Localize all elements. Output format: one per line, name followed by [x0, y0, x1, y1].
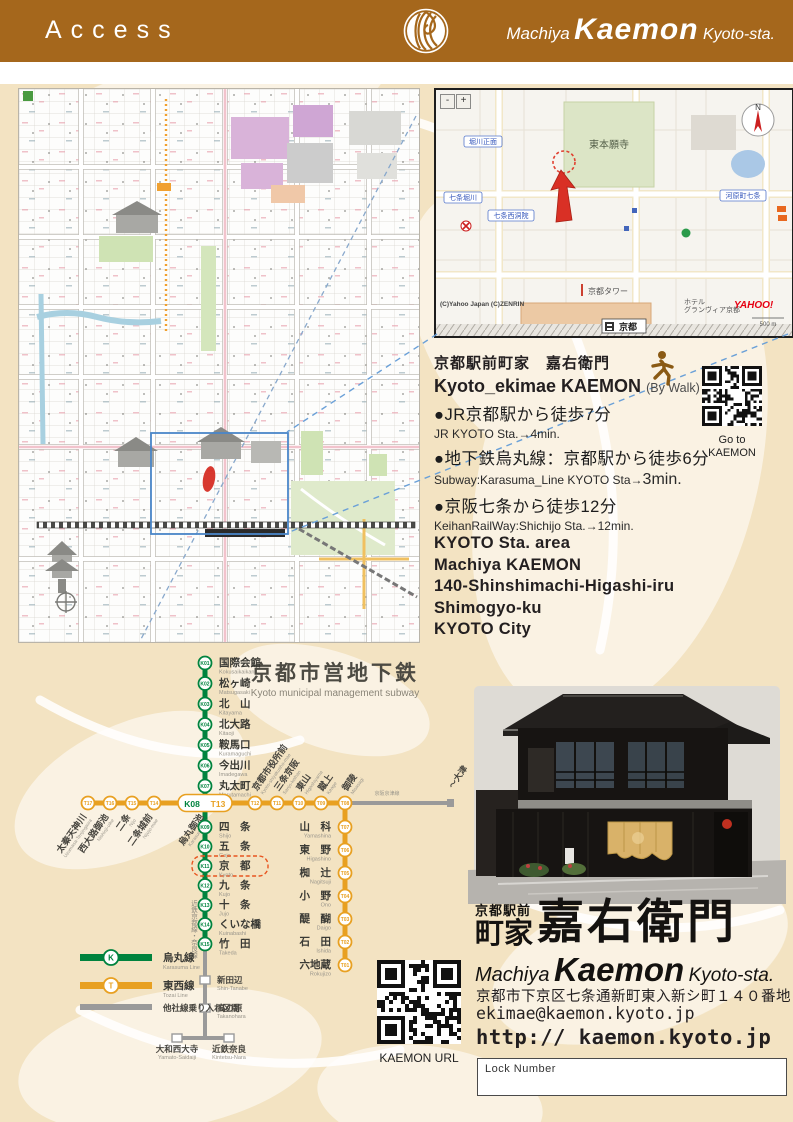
address-line: Shimogyo-ku [434, 598, 674, 620]
svg-text:T06: T06 [341, 848, 350, 854]
svg-text:K: K [108, 954, 114, 963]
svg-text:T02: T02 [341, 940, 350, 946]
svg-text:Kyoto: Kyoto [219, 873, 233, 879]
svg-text:T01: T01 [341, 963, 350, 969]
svg-text:醍 醐: 醍 醐 [300, 912, 332, 925]
compass-icon: N [742, 103, 774, 136]
route-keihan-jp: ●京阪七条から徒歩12分 [434, 493, 702, 517]
svg-text:T07: T07 [341, 825, 350, 831]
svg-text:Kintetsu-Nara: Kintetsu-Nara [212, 1055, 247, 1061]
zoom-in-button[interactable]: + [456, 94, 471, 109]
street-label: 河原町七条 [726, 191, 761, 200]
pond [731, 150, 765, 178]
lock-number-field[interactable]: Lock Number [477, 1058, 787, 1096]
map-scale: 500 m [760, 322, 777, 328]
svg-text:K09: K09 [200, 825, 209, 831]
qr1-caption-line2: KAEMON [708, 447, 756, 459]
brand-logotype: Machiya Kaemon Kyoto-sta. [506, 13, 775, 47]
logo-kaemon-jp: 嘉右衛門 [537, 898, 737, 948]
svg-text:京都: 京都 [619, 321, 637, 332]
svg-text:Yamashina: Yamashina [304, 834, 332, 840]
svg-text:T12: T12 [251, 801, 260, 807]
svg-text:小 野: 小 野 [299, 889, 332, 902]
svg-text:今出川: 今出川 [218, 759, 251, 772]
logo-romaji: Machiya Kaemon Kyoto-sta. [475, 951, 774, 989]
svg-text:Imadegawa: Imadegawa [219, 772, 248, 778]
header-bar: Access Machiya Kaemon Kyoto-sta. [0, 0, 793, 62]
svg-text:K13: K13 [200, 903, 209, 909]
svg-text:T13: T13 [211, 799, 226, 809]
svg-text:K15: K15 [200, 942, 209, 948]
walking-person-icon [645, 350, 679, 388]
header-divider [0, 62, 793, 84]
svg-text:T: T [109, 982, 114, 991]
svg-text:K07: K07 [200, 784, 209, 790]
kyoto-station-block [205, 529, 285, 537]
svg-text:近鉄京都線・奈良線: 近鉄京都線・奈良線 [190, 899, 198, 959]
svg-text:K12: K12 [200, 884, 209, 890]
address-line: Machiya KAEMON [434, 555, 674, 577]
svg-text:京 都: 京 都 [219, 859, 251, 872]
map-green-marker [23, 91, 33, 101]
svg-text:国際会館: 国際会館 [219, 656, 261, 669]
svg-text:Daigo: Daigo [317, 926, 331, 932]
qr-kaemon-url: KAEMON URL [376, 960, 462, 1065]
svg-text:石 田: 石 田 [299, 936, 332, 948]
svg-text:T16: T16 [106, 801, 115, 807]
svg-text:Karasuma Line: Karasuma Line [163, 965, 200, 971]
svg-text:竹 田: 竹 田 [218, 937, 251, 950]
svg-text:十 条: 十 条 [219, 898, 251, 911]
svg-text:Takeda: Takeda [219, 951, 238, 957]
svg-text:T10: T10 [295, 801, 304, 807]
svg-text:T03: T03 [341, 917, 350, 923]
svg-text:近鉄奈良: 近鉄奈良 [212, 1044, 247, 1054]
hotel-label-1: ホテル [684, 298, 705, 306]
svg-text:くいな橋: くいな橋 [219, 918, 261, 931]
lock-number-label: Lock Number [485, 1063, 786, 1075]
map-attribution: (C)Yahoo Japan (C)ZENRIN [440, 301, 524, 308]
svg-text:T17: T17 [84, 801, 93, 807]
logo-ekimae: 京都駅前 [475, 900, 533, 919]
svg-text:東西線: 東西線 [163, 979, 195, 992]
honganji-label: 東本願寺 [589, 138, 629, 151]
svg-text:K05: K05 [200, 743, 209, 749]
svg-text:T08: T08 [341, 801, 350, 807]
svg-text:Kuinabashi: Kuinabashi [219, 931, 246, 937]
brand-machiya: Machiya [506, 24, 569, 43]
svg-text:五 条: 五 条 [219, 840, 251, 853]
svg-text:他社線乗り入れ区間: 他社線乗り入れ区間 [162, 1003, 240, 1013]
svg-text:北 山: 北 山 [219, 697, 251, 710]
svg-text:Higashino: Higashino [307, 857, 331, 863]
yahoo-inset-map: 東本願寺 堀川正面 七条堀川 七条西洞院 河原町七条 京都タワー ホテル グラン… [434, 88, 793, 338]
qr-code [377, 960, 461, 1044]
page-title: Access [45, 16, 180, 45]
svg-text:K03: K03 [200, 702, 209, 708]
svg-text:大和西大寺: 大和西大寺 [156, 1044, 199, 1054]
svg-text:T15: T15 [128, 801, 137, 807]
route-jr-en: JR KYOTO Sta.→4min. [434, 427, 702, 441]
svg-text:九 条: 九 条 [218, 879, 251, 892]
yahoo-logo: YAHOO! [734, 300, 774, 311]
svg-text:椥 辻: 椥 辻 [300, 866, 332, 879]
svg-text:K10: K10 [200, 845, 209, 851]
svg-text:K11: K11 [201, 864, 210, 870]
svg-text:Takanohara: Takanohara [217, 1014, 247, 1020]
svg-text:北大路: 北大路 [219, 718, 251, 731]
svg-text:K01: K01 [200, 661, 209, 667]
address-line: 140-Shinshimachi-Higashi-iru [434, 576, 674, 598]
route-subway-jp: ●地下鉄烏丸線：京都駅から徒歩6分 [434, 445, 702, 469]
svg-text:T05: T05 [341, 871, 350, 877]
svg-text:Ono: Ono [321, 903, 331, 909]
street-label: 七条西洞院 [494, 211, 529, 220]
hotel-label-2: グランヴィア京都 [684, 305, 740, 314]
kyoto-station-label: 京都 [602, 319, 646, 333]
svg-text:山 科: 山 科 [300, 820, 332, 833]
svg-text:T04: T04 [341, 894, 350, 900]
qr-go-to-kaemon: Go to KAEMON [700, 366, 764, 460]
jr-line [37, 522, 415, 528]
svg-text:K02: K02 [200, 682, 209, 688]
svg-text:K04: K04 [200, 723, 209, 729]
svg-text:Shijo: Shijo [219, 834, 231, 840]
street-label: 七条堀川 [449, 193, 477, 202]
svg-text:Kitayama: Kitayama [219, 711, 243, 717]
access-flyer-page: Access Machiya Kaemon Kyoto-sta. [0, 0, 793, 1122]
kyoto-tower-label: 京都タワー [588, 286, 628, 296]
route-keihan-en: KeihanRailWay:Shichijo Sta.→12min. [434, 519, 702, 533]
svg-text:Shin-Tanabe: Shin-Tanabe [217, 986, 248, 992]
address-block: KYOTO Sta. area Machiya KAEMON 140-Shins… [434, 533, 674, 641]
svg-text:Rokujizo: Rokujizo [310, 972, 331, 978]
svg-text:Kokusaikaikan: Kokusaikaikan [219, 670, 254, 676]
svg-text:烏丸線: 烏丸線 [163, 951, 195, 964]
street-label: 堀川正面 [469, 137, 497, 146]
zoom-out-button[interactable]: - [440, 94, 455, 109]
svg-text:T14: T14 [150, 801, 159, 807]
svg-text:K08: K08 [184, 799, 200, 809]
svg-text:Yamato-Saidaiji: Yamato-Saidaiji [158, 1055, 196, 1061]
qr1-caption-line1: Go to [719, 434, 746, 446]
brand-kyoto-sta: Kyoto-sta. [703, 26, 775, 43]
machiya-building-photo [468, 672, 786, 904]
svg-text:Matsugasaki: Matsugasaki [219, 690, 250, 696]
route-subway-en: Subway:Karasuma_Line KYOTO Sta→3min. [434, 471, 702, 489]
svg-text:松ヶ崎: 松ヶ崎 [219, 677, 251, 690]
brand-kaemon: Kaemon [574, 13, 698, 46]
svg-text:K06: K06 [200, 764, 209, 770]
svg-text:東 野: 東 野 [300, 843, 332, 856]
svg-text:丸太町: 丸太町 [218, 779, 251, 792]
footer-url[interactable]: http:// kaemon.kyoto.jp [476, 1025, 771, 1049]
svg-text:Kujo: Kujo [219, 892, 230, 898]
svg-text:K14: K14 [200, 923, 209, 929]
svg-text:六地蔵: 六地蔵 [300, 958, 332, 971]
svg-text:京阪京津線: 京阪京津線 [374, 790, 399, 797]
address-line: KYOTO Sta. area [434, 533, 674, 555]
poi-x-icon [461, 221, 471, 231]
kamon-crest-logo [402, 7, 450, 55]
qr-code [702, 366, 762, 426]
svg-text:Kuramaguchi: Kuramaguchi [219, 752, 251, 758]
svg-text:Tozai Line: Tozai Line [163, 993, 188, 999]
svg-text:T09: T09 [317, 801, 326, 807]
route-jr-jp: ●JR京都駅から徒歩7分 [434, 401, 702, 425]
address-line: KYOTO City [434, 619, 674, 641]
qr2-caption: KAEMON URL [376, 1052, 462, 1065]
svg-text:Kyoto municipal management sub: Kyoto municipal management subway [251, 688, 419, 699]
kyoto-city-map [18, 88, 420, 643]
footer-address-jp: 京都市下京区七条通新町東入新シ町１４０番地 [476, 985, 791, 1006]
svg-text:鞍馬口: 鞍馬口 [219, 738, 251, 751]
svg-text:四 条: 四 条 [219, 820, 251, 833]
footer-logo: 京都駅前 町家 嘉右衛門 Machiya Kaemon Kyoto-sta. [475, 898, 774, 989]
svg-text:Jujo: Jujo [219, 912, 229, 918]
svg-text:Kitaoji: Kitaoji [219, 731, 234, 737]
svg-text:Nagitsuji: Nagitsuji [310, 880, 331, 886]
svg-text:Ishida: Ishida [316, 949, 332, 955]
logo-machiya-jp: 町家 [475, 919, 533, 949]
footer-email[interactable]: ekimae@kaemon.kyoto.jp [476, 1004, 695, 1023]
svg-text:新田辺: 新田辺 [217, 975, 243, 985]
svg-text:京都市営地下鉄: 京都市営地下鉄 [251, 661, 419, 685]
svg-text:T11: T11 [273, 801, 282, 807]
svg-text:～大津: ～大津 [446, 763, 469, 790]
svg-text:二条: 二条 [113, 811, 133, 833]
